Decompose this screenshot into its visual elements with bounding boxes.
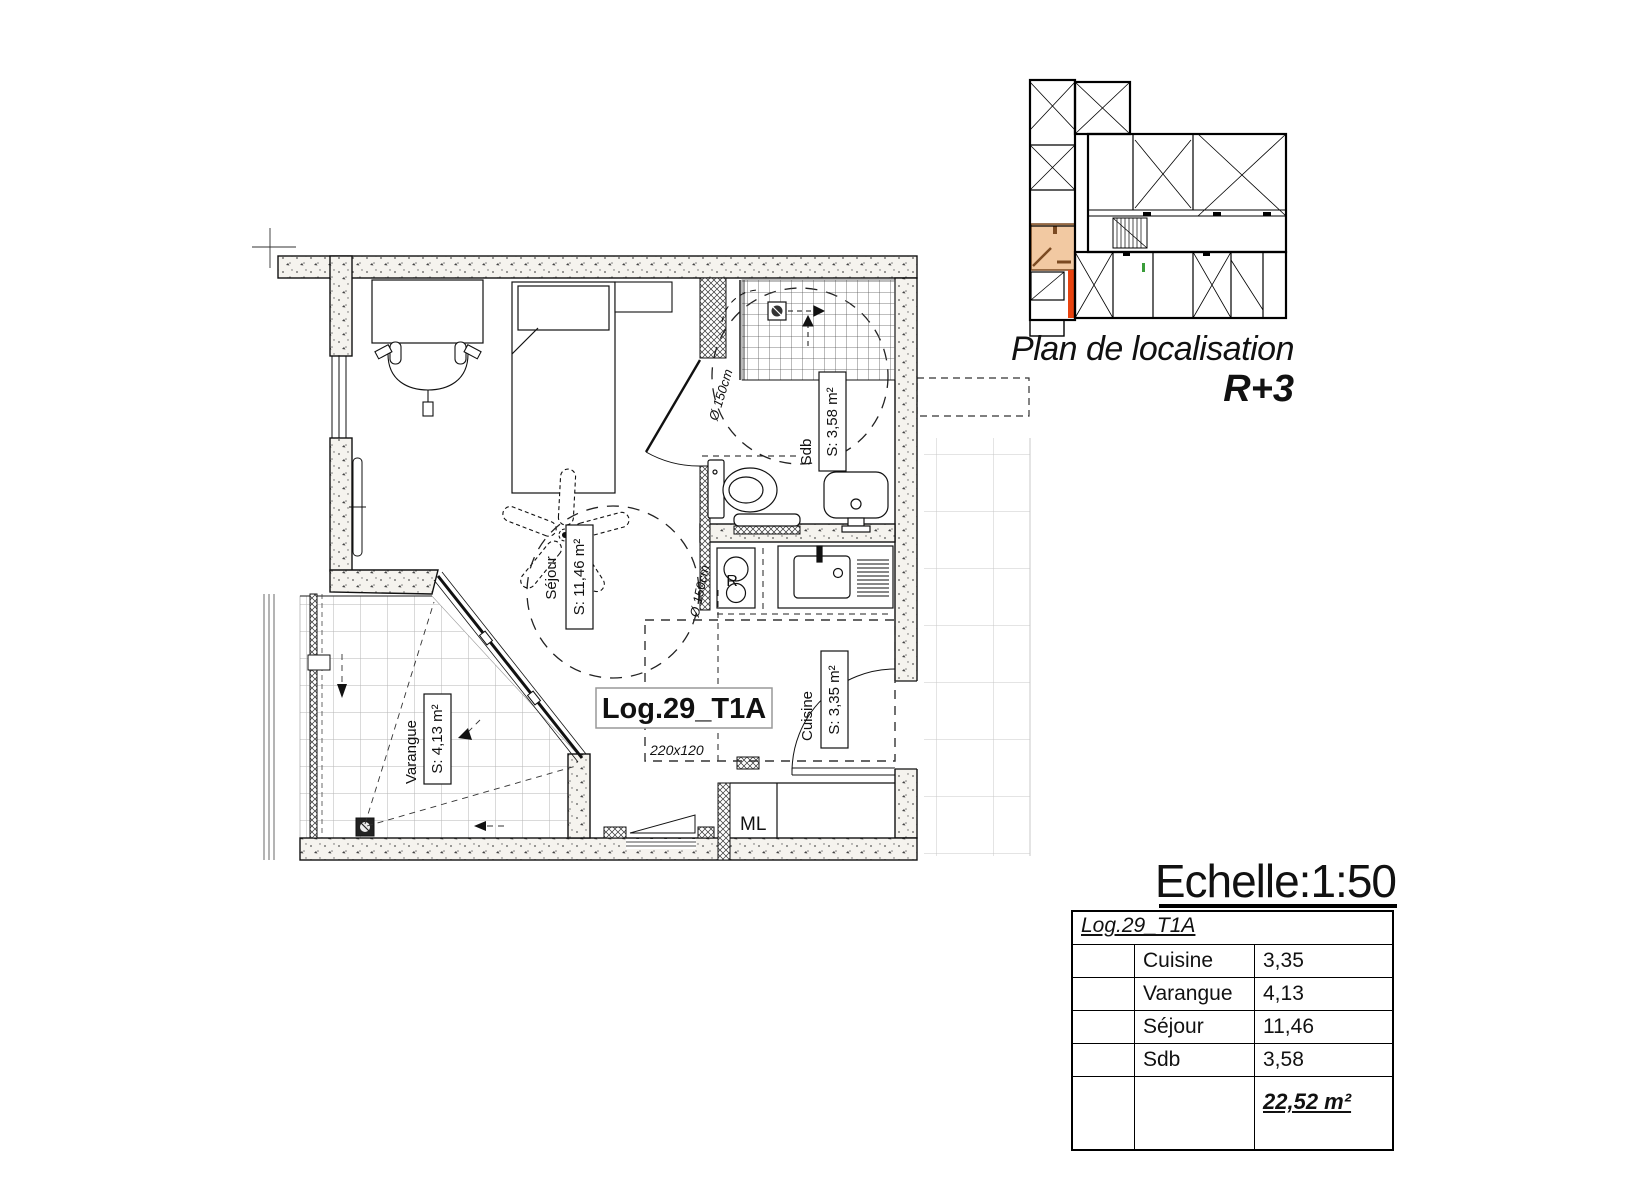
washing-machine-room: ML [730,783,895,838]
unit-label: Log.29_T1A [602,693,766,725]
neighbour-area [917,378,1030,856]
building-doors [1123,212,1271,272]
desk [372,280,483,343]
row-label: Sdb [1135,1044,1255,1076]
localisation-level: R+3 [960,368,1294,411]
varangue-area: S: 4,13 m² [429,704,446,773]
page: R [0,0,1644,1190]
sejour-name: Séjour [543,556,560,599]
row-value: 3,35 [1255,945,1392,977]
stairs [1113,218,1147,248]
unit-label-box: Log.29_T1A [596,688,772,728]
row-spacer [1135,1077,1255,1149]
sdb-name: Sdb [798,439,815,466]
table-total-row: 22,52 m² [1073,1077,1392,1149]
varangue-name: Varangue [403,720,420,784]
floor-plan: R [252,226,1052,871]
kitchen-sink [778,546,893,608]
sejour-area: S: 11,46 m² [571,539,588,615]
area-table: Log.29_T1A Cuisine 3,35 Varangue 4,13 Sé… [1071,910,1394,1151]
clearance-dimension: 220x120 [649,742,704,758]
table-row: Sdb 3,58 [1073,1044,1392,1077]
varangue-drain [356,818,374,836]
row-spacer [1073,1077,1135,1149]
bed [512,282,615,493]
sdb-area: S: 3,58 m² [824,387,841,456]
diameter-label-sdb: Ø 150cm [706,367,736,423]
shower-area [722,280,895,380]
table-row: Séjour 11,46 [1073,1011,1392,1044]
row-spacer [1073,1011,1135,1043]
sdb-label: Sdb S: 3,58 m² [798,372,846,471]
table-row: Varangue 4,13 [1073,978,1392,1011]
row-spacer [1073,1044,1135,1076]
cuisine-name: Cuisine [799,691,816,741]
localisation-plan [963,50,1303,342]
table-header: Log.29_T1A [1073,912,1392,945]
toilet [708,460,800,526]
table-row: Cuisine 3,35 [1073,945,1392,978]
row-spacer [1073,978,1135,1010]
total-area: 22,52 m² [1255,1077,1392,1149]
shower-drain [768,302,786,320]
cuisine-label: Cuisine S: 3,35 m² [799,651,848,748]
cuisine-area: S: 3,35 m² [826,665,843,734]
nightstand [615,282,672,312]
fridge: R [717,548,755,608]
row-label: Cuisine [1135,945,1255,977]
washing-machine-label: ML [740,814,766,835]
chair [375,342,481,416]
row-label: Varangue [1135,978,1255,1010]
row-label: Séjour [1135,1011,1255,1043]
row-value: 4,13 [1255,978,1392,1010]
window-left [330,356,352,438]
row-value: 3,58 [1255,1044,1392,1076]
sejour-label: Séjour S: 11,46 m² [543,525,593,629]
scale-underline [1159,904,1397,908]
highlighted-unit [1031,224,1075,270]
fridge-label: R [726,573,738,590]
localisation-title: Plan de localisation [960,330,1294,369]
washbasin [824,472,888,532]
table-header-label: Log.29_T1A [1081,914,1195,937]
row-value: 11,46 [1255,1011,1392,1043]
row-spacer [1073,945,1135,977]
entrance-door [630,815,695,833]
scale-title: Echelle:1:50 [1000,854,1396,908]
